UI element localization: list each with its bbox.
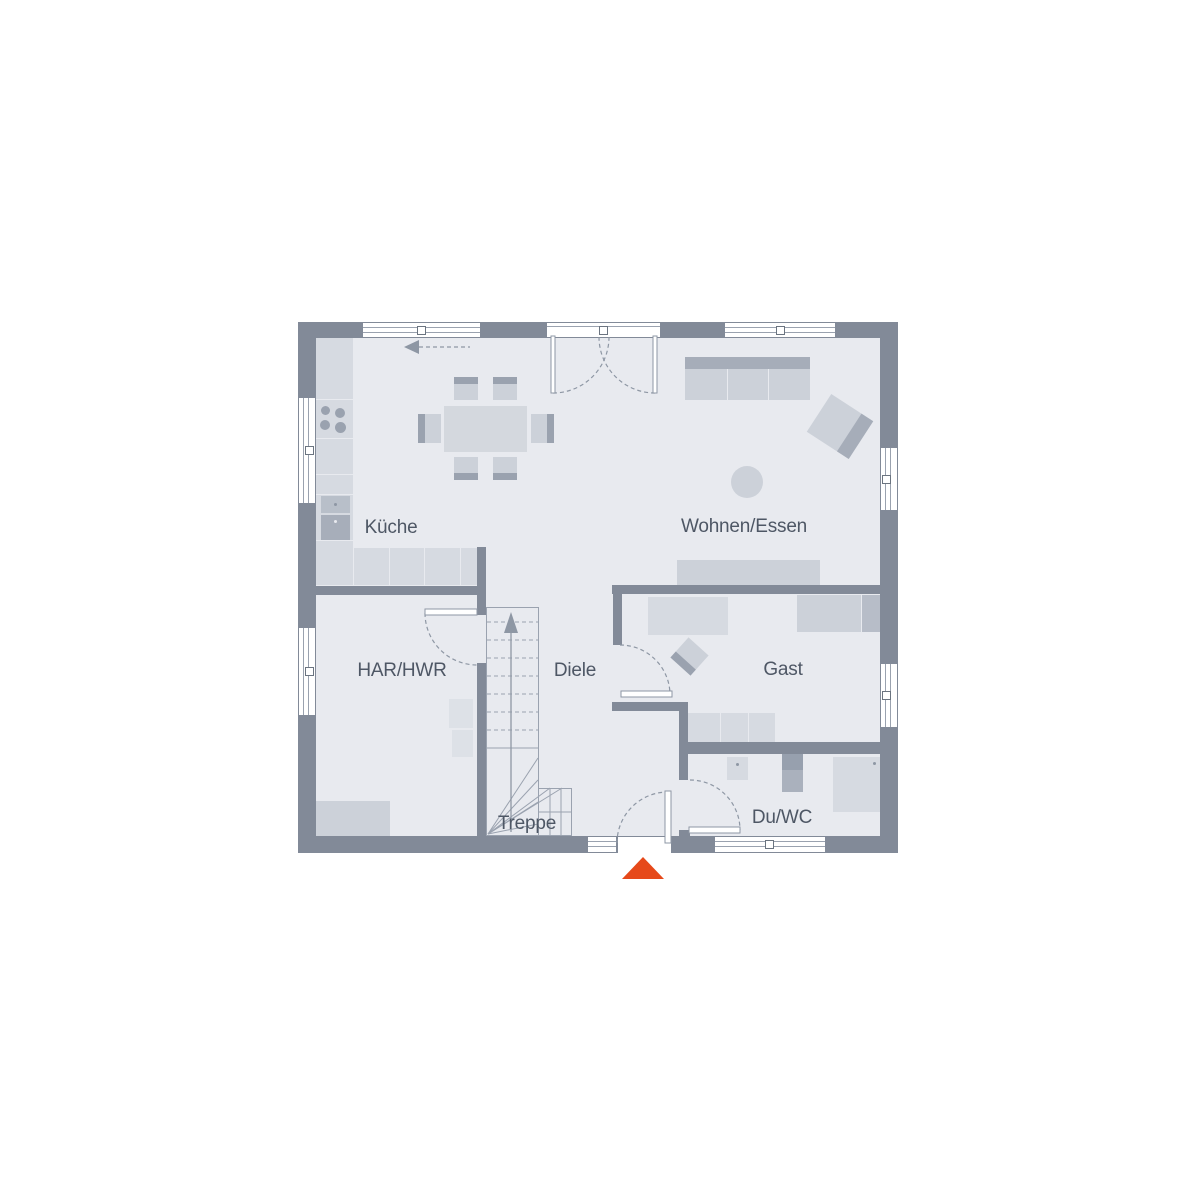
window-kitchen-top: [363, 323, 480, 337]
toilet-tank: [782, 752, 803, 770]
wall-counter-stub: [477, 547, 486, 595]
bed-mattress: [797, 595, 861, 632]
oven-dot: [334, 520, 337, 523]
entrance-door-opening: [618, 837, 671, 853]
room-label-diele: Diele: [554, 660, 596, 682]
sofa: [685, 357, 810, 400]
kitchen-sink: [321, 496, 350, 513]
counter-divider: [316, 474, 353, 475]
window-symbol: [305, 446, 314, 455]
bed-pillow: [862, 595, 880, 632]
window-kitchen-left: [299, 398, 315, 503]
dining-chair-left: [418, 414, 441, 443]
glazing-line: [588, 841, 616, 842]
cooktop: [318, 402, 352, 436]
sofa-divider: [727, 369, 728, 400]
toilet: [782, 752, 803, 792]
sofa-seats: [685, 369, 810, 400]
wall-duwc-north: [688, 742, 880, 754]
counter-divider: [316, 494, 353, 495]
chair-back: [418, 414, 425, 443]
burner: [335, 422, 346, 433]
sofa-backrest: [685, 357, 810, 369]
dresser: [688, 713, 775, 742]
shower: [833, 757, 880, 812]
window-symbol: [417, 326, 426, 335]
dresser-divider: [720, 713, 721, 742]
dining-chair-top-left: [454, 377, 478, 400]
dresser-divider: [748, 713, 749, 742]
bathroom-sink: [727, 757, 748, 780]
room-label-du-wc: Du/WC: [752, 807, 812, 829]
dining-chair-bottom-left: [454, 457, 478, 480]
counter-divider: [316, 399, 353, 400]
burner: [335, 408, 345, 418]
wall-outer-right: [880, 322, 898, 853]
room-label-har-hwr: HAR/HWR: [357, 660, 446, 682]
counter-divider: [460, 548, 461, 585]
glazing-line: [588, 846, 616, 847]
window-living-right: [881, 448, 897, 510]
dining-chair-top-right: [493, 377, 517, 400]
har-appliance-upper: [449, 699, 473, 728]
window-symbol: [882, 475, 891, 484]
kitchen-counter-bottom: [316, 548, 477, 585]
wall-stairs-west-upper: [477, 595, 486, 615]
floor-plan-page: Küche Wohnen/Essen HAR/HWR Diele Gast Tr…: [0, 0, 1200, 1200]
dining-chair-right: [531, 414, 554, 443]
room-label-kueche: Küche: [365, 517, 418, 539]
dining-table: [444, 406, 527, 452]
room-label-wohnen-essen: Wohnen/Essen: [681, 516, 807, 538]
chair-back: [454, 377, 478, 384]
window-symbol: [776, 326, 785, 335]
wall-gast-north: [612, 585, 880, 594]
window-symbol: [599, 326, 608, 335]
dining-chair-bottom-right: [493, 457, 517, 480]
terrace-door-opening: [547, 323, 660, 337]
wall-duwc-door-stub: [679, 830, 690, 836]
desk: [648, 597, 728, 635]
sink-dot: [334, 503, 337, 506]
chair-back: [547, 414, 554, 443]
entrance-sidelight: [588, 837, 616, 852]
shower-drain: [873, 762, 876, 765]
side-table: [731, 466, 763, 498]
har-appliance-lower: [452, 730, 473, 757]
oven: [321, 515, 350, 540]
wall-stairs-west-lower: [477, 663, 486, 836]
window-symbol: [882, 691, 891, 700]
counter-divider: [353, 548, 354, 585]
glazing-line: [303, 398, 304, 503]
window-living-top: [725, 323, 835, 337]
burner: [321, 406, 330, 415]
wall-diele-corner-v: [679, 702, 688, 780]
burner: [320, 420, 330, 430]
chair-back: [454, 473, 478, 480]
sideboard: [677, 560, 820, 585]
bed: [797, 595, 880, 632]
wall-diele-corner-h: [612, 702, 688, 711]
sofa-divider: [768, 369, 769, 400]
window-symbol: [305, 667, 314, 676]
counter-divider: [389, 548, 390, 585]
window-duwc-bottom: [715, 837, 825, 852]
window-symbol: [765, 840, 774, 849]
chair-back: [493, 377, 517, 384]
wall-kueche-har: [316, 586, 486, 595]
window-har-left: [299, 628, 315, 715]
sink-dot: [736, 763, 739, 766]
toilet-bowl: [782, 770, 803, 792]
har-cabinet: [316, 801, 390, 836]
window-gast-right: [881, 664, 897, 727]
counter-divider: [316, 438, 353, 439]
chair-back: [493, 473, 517, 480]
room-label-treppe: Treppe: [498, 813, 556, 835]
entrance-marker: [622, 857, 664, 879]
room-label-gast: Gast: [763, 659, 802, 681]
wall-gast-west-upper: [613, 594, 622, 645]
glazing-line: [303, 628, 304, 715]
counter-divider: [424, 548, 425, 585]
counter-divider: [316, 540, 353, 541]
